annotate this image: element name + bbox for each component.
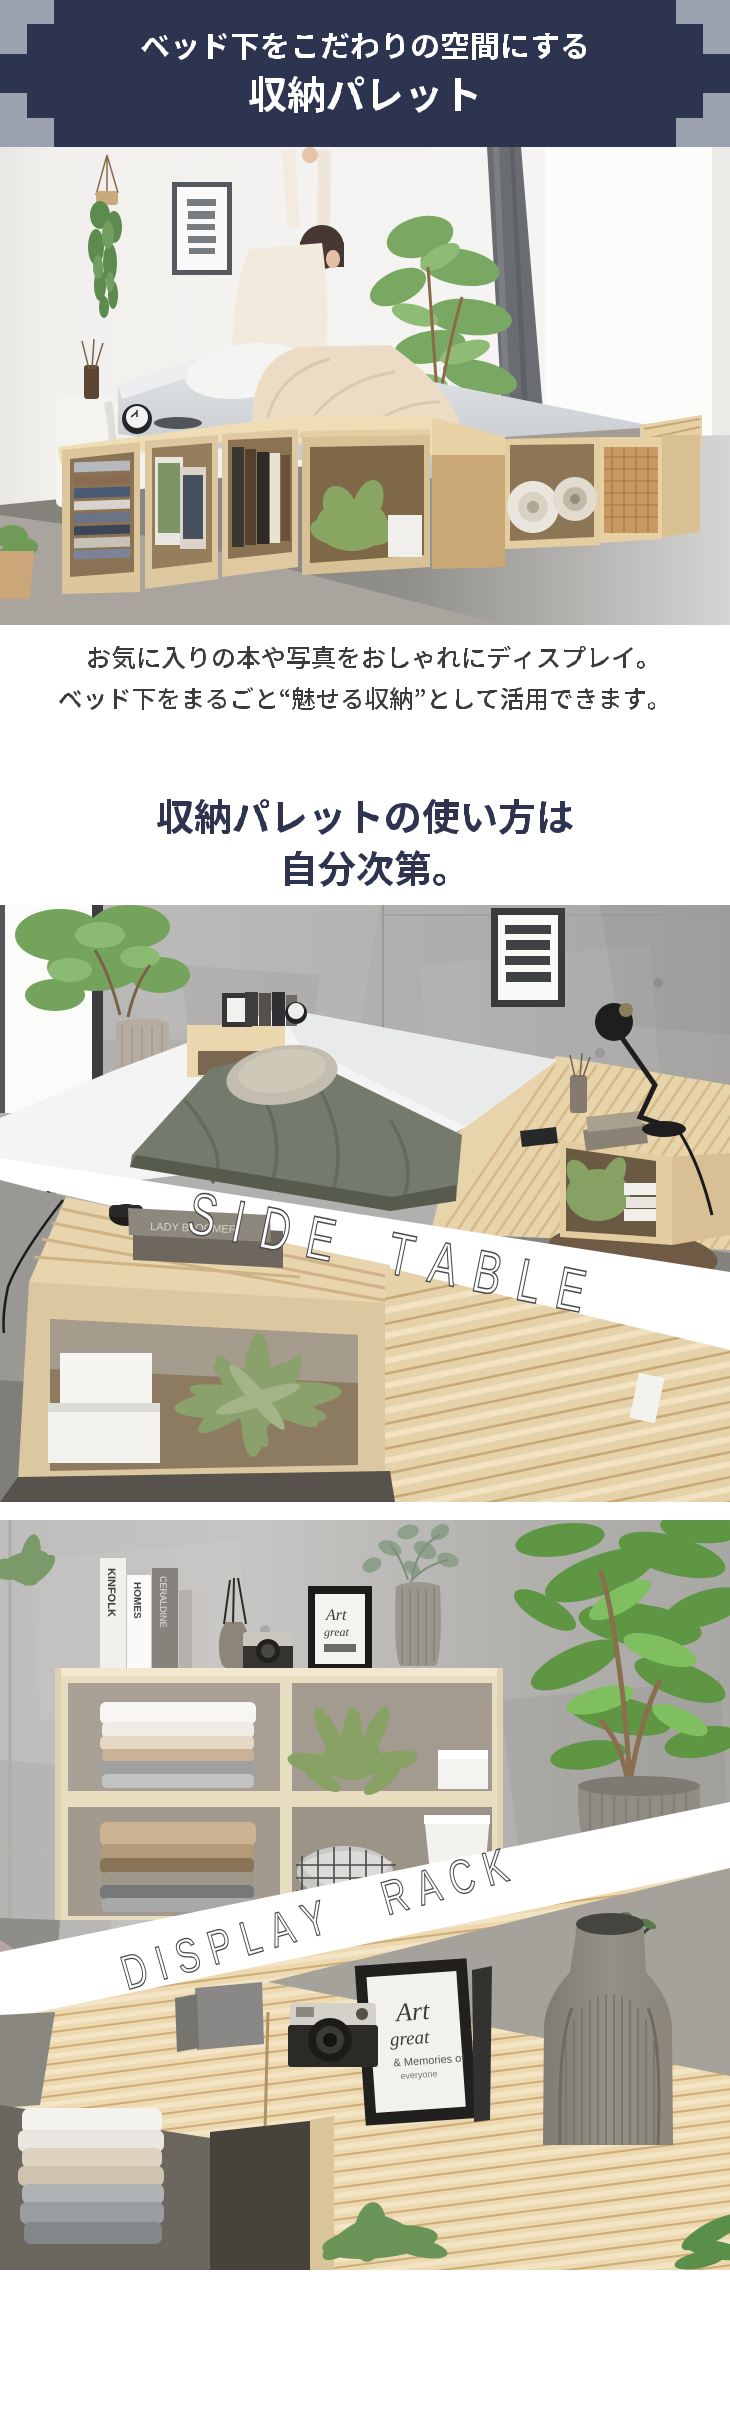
svg-text:great: great [389,2027,430,2051]
svg-text:KINFOLK: KINFOLK [105,1568,117,1617]
svg-text:CERALDINE: CERALDINE [158,1576,168,1628]
svg-text:Art: Art [325,1607,347,1624]
svg-text:great: great [324,1625,350,1639]
svg-text:Art: Art [393,1996,431,2027]
svg-text:HOMES: HOMES [131,1582,142,1619]
